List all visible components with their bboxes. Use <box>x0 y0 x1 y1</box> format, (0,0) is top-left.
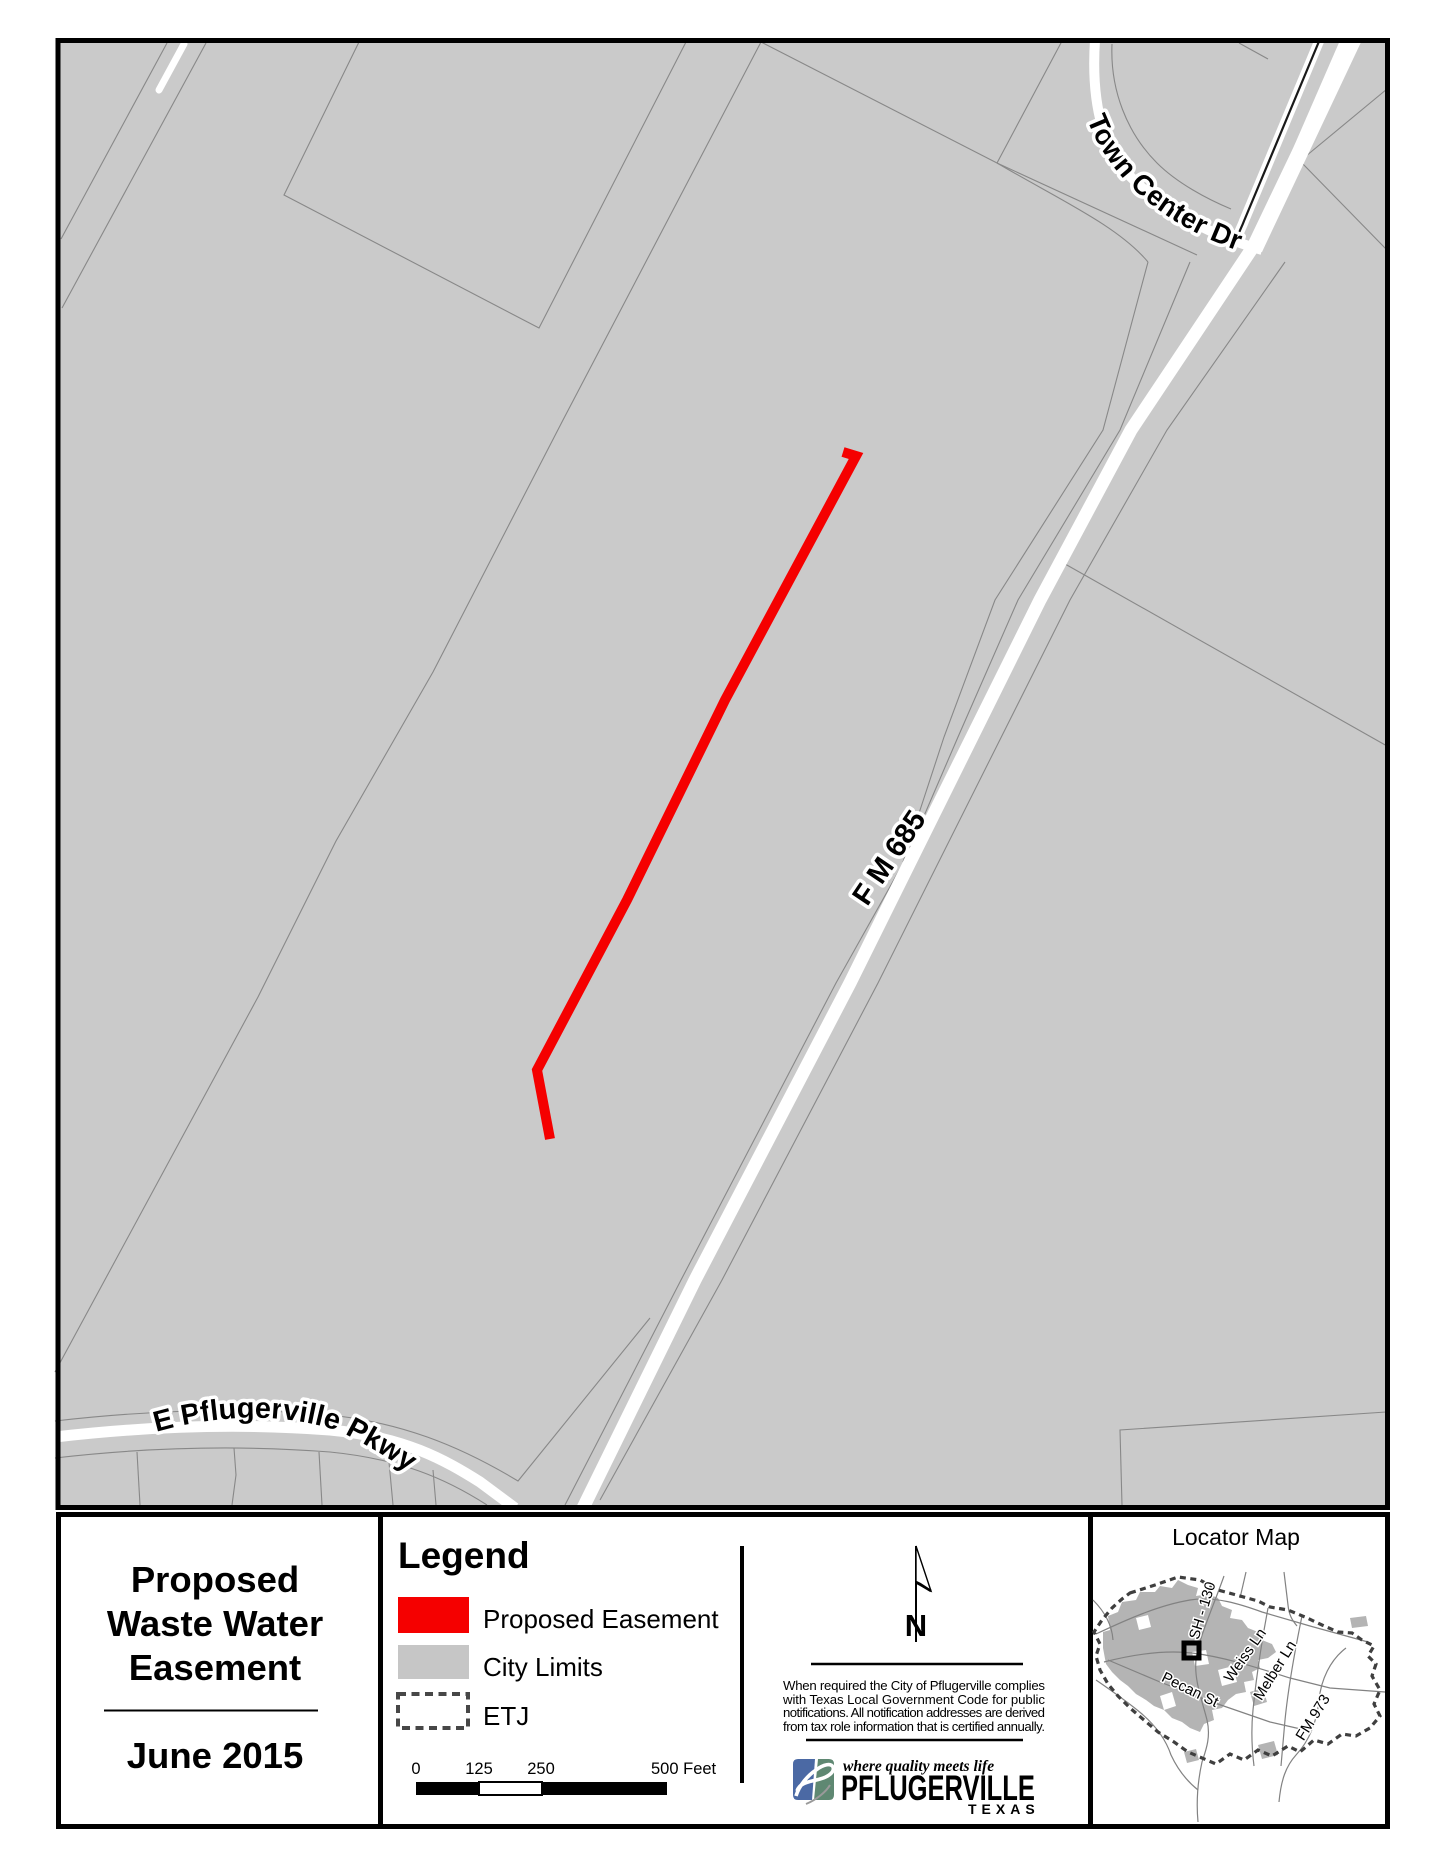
svg-text:Proposed Easement: Proposed Easement <box>483 1604 719 1634</box>
svg-text:Locator Map: Locator Map <box>1172 1524 1300 1550</box>
svg-text:250: 250 <box>527 1760 555 1778</box>
svg-text:When required the City of Pflu: When required the City of Pflugerville c… <box>783 1678 1045 1693</box>
svg-text:Easement: Easement <box>129 1647 301 1688</box>
svg-text:City Limits: City Limits <box>483 1652 603 1682</box>
svg-text:ETJ: ETJ <box>483 1701 529 1731</box>
svg-text:Proposed: Proposed <box>131 1559 299 1600</box>
svg-text:Waste Water: Waste Water <box>107 1603 323 1644</box>
svg-text:N: N <box>905 1608 927 1643</box>
svg-text:June 2015: June 2015 <box>127 1735 304 1776</box>
svg-text:from tax role information that: from tax role information that is certif… <box>783 1719 1045 1734</box>
svg-text:notifications. All notificatio: notifications. All notification addresse… <box>783 1705 1045 1720</box>
svg-text:0: 0 <box>411 1760 420 1778</box>
svg-text:500 Feet: 500 Feet <box>651 1760 717 1778</box>
svg-text:TEXAS: TEXAS <box>968 1801 1040 1817</box>
svg-text:125: 125 <box>465 1760 493 1778</box>
svg-text:Legend: Legend <box>398 1535 530 1576</box>
